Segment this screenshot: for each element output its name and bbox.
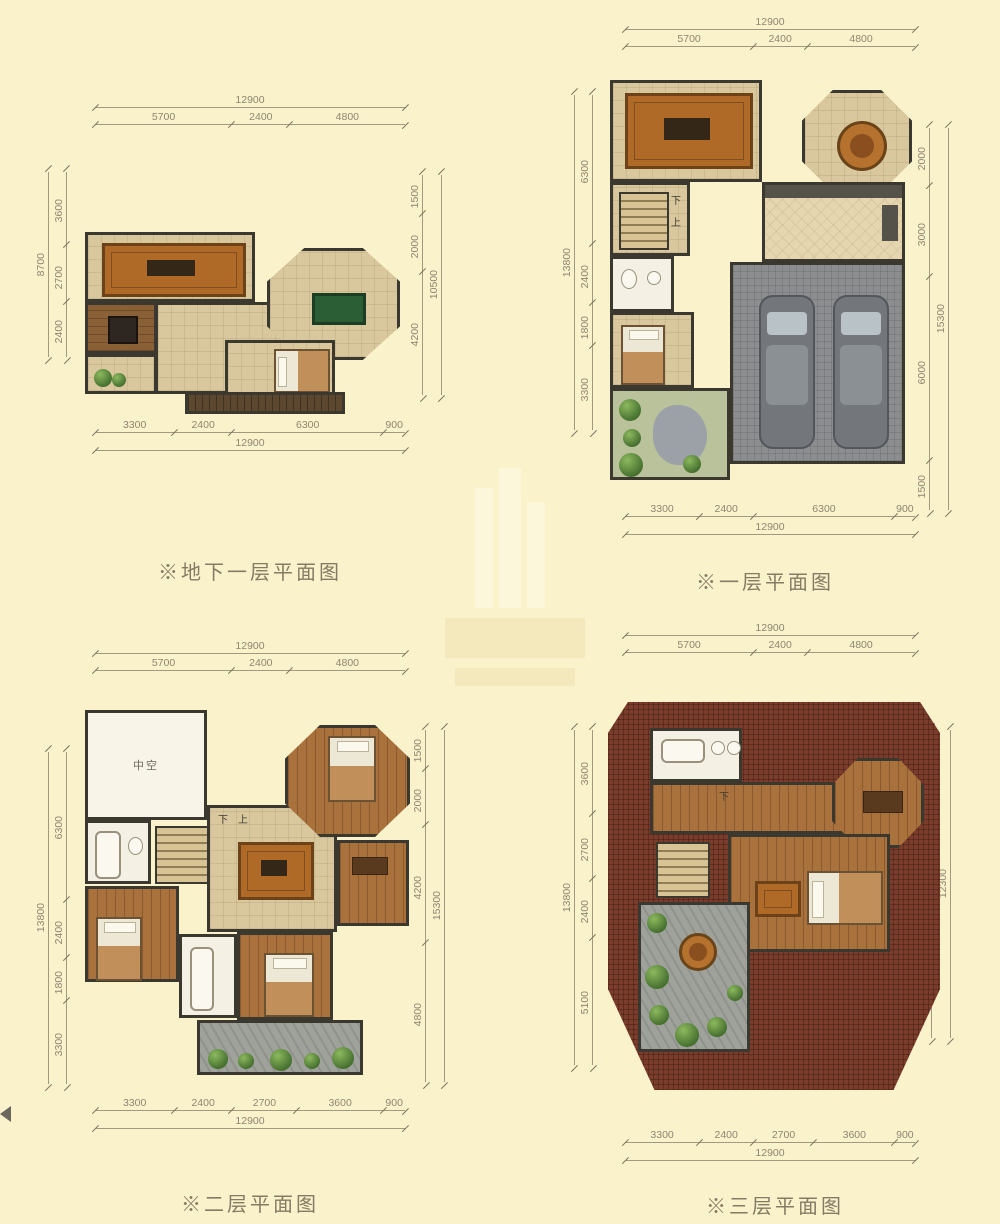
dim-segments: 6300240018003300	[575, 95, 593, 430]
bed	[96, 917, 142, 981]
dim-segment: 3300	[625, 1126, 699, 1143]
study-right	[337, 840, 409, 926]
dim-label: 4800	[336, 112, 359, 125]
dim-overall: 12900	[625, 618, 915, 636]
plan3-floorplan: 中空 下 上	[85, 710, 415, 1085]
dim-label: 2700	[253, 1098, 276, 1111]
dim-segment: 3000	[912, 189, 930, 281]
dim-segment: 2400	[49, 306, 67, 357]
dim-segment: 2000	[405, 218, 423, 275]
plant	[619, 453, 643, 477]
dim-label: 12900	[755, 17, 784, 30]
dim-label: 15300	[432, 891, 445, 920]
dim-label: 13800	[36, 903, 49, 932]
dim-label: 15300	[936, 304, 949, 333]
dim-overall: 12900	[625, 1143, 915, 1161]
dim-segment: 3600	[814, 1126, 895, 1143]
bed	[274, 349, 330, 393]
dim-segment: 2400	[575, 248, 593, 306]
dining-room	[802, 90, 912, 192]
dim-segment: 4800	[807, 636, 915, 653]
dim-overall: 12900	[625, 517, 915, 535]
plant	[623, 429, 641, 447]
dim-label: 2400	[768, 640, 791, 653]
dim-label: 13800	[562, 248, 575, 277]
dim-label: 12900	[235, 95, 264, 108]
dim-label: 13800	[562, 883, 575, 912]
plan2-dims-bottom: 330024006300900 12900	[625, 500, 915, 535]
dim-label: 6300	[296, 420, 319, 433]
dim-label: 5700	[677, 34, 700, 47]
dim-label: 6300	[580, 160, 593, 183]
dim-segments: 570024004800	[625, 30, 915, 47]
dim-label: 12900	[755, 1148, 784, 1161]
desk	[352, 857, 388, 875]
dim-segment: 6300	[575, 95, 593, 248]
living-room	[85, 232, 255, 302]
dim-segments: 6300240018003300	[49, 752, 67, 1084]
rug	[238, 842, 314, 900]
dim-label: 5700	[152, 658, 175, 671]
dim-segments: 570024004800	[95, 108, 405, 125]
dim-segment: 3300	[95, 416, 174, 433]
dim-segment: 4800	[290, 108, 405, 125]
dim-label: 4200	[410, 323, 423, 346]
dim-segment: 2400	[753, 636, 807, 653]
dim-segment: 900	[895, 1126, 915, 1143]
dim-segment: 1500	[405, 175, 423, 218]
stair-label-up: 上	[238, 816, 248, 826]
watermark-logo	[425, 468, 605, 713]
dim-overall: 12900	[95, 433, 405, 451]
dim-label: 4800	[336, 658, 359, 671]
hallway: 下	[650, 782, 862, 834]
dim-overall: 12900	[95, 1111, 405, 1129]
plant	[304, 1053, 320, 1069]
dim-segment: 1800	[49, 961, 67, 1004]
dim-label: 2400	[249, 112, 272, 125]
dim-segment: 2400	[575, 883, 593, 941]
dim-overall: 8700	[30, 172, 49, 357]
dim-label: 3300	[123, 420, 146, 433]
master-bedroom	[728, 834, 890, 952]
dim-label: 2400	[768, 34, 791, 47]
plan4-dims-top: 12900 570024004800	[625, 618, 915, 653]
plant	[645, 965, 669, 989]
toilet	[128, 837, 143, 855]
roof-terrace	[638, 902, 750, 1052]
dim-segments: 360027002400	[49, 172, 67, 357]
dim-segment: 2400	[699, 1126, 753, 1143]
dim-label: 12900	[755, 522, 784, 535]
dim-segment: 2700	[49, 249, 67, 306]
dim-label: 5700	[677, 640, 700, 653]
bathtub	[95, 831, 121, 879]
bedroom-left	[85, 886, 179, 982]
dim-segment: 2700	[232, 1094, 297, 1111]
dim-segment: 2000	[912, 128, 930, 189]
dim-overall: 15300	[426, 730, 445, 1082]
dim-label: 6300	[54, 816, 67, 839]
dim-label: 1500	[410, 185, 423, 208]
bed	[328, 736, 376, 802]
dim-label: 3300	[54, 1033, 67, 1056]
plant	[707, 1017, 727, 1037]
dim-segments: 3300240027003600900	[625, 1126, 915, 1143]
plan2-dims-left: 13800 6300240018003300	[556, 95, 593, 430]
sink	[727, 741, 741, 755]
plant	[94, 369, 112, 387]
dim-label: 10500	[429, 270, 442, 299]
storage-room	[85, 354, 157, 394]
dim-label: 5100	[580, 991, 593, 1014]
dim-segment: 900	[383, 416, 405, 433]
kitchen-counter	[765, 185, 902, 198]
plan1-dims-top: 12900 570024004800	[95, 90, 405, 125]
void-label: 中空	[133, 757, 159, 773]
dim-label: 4800	[849, 640, 872, 653]
bathroom	[85, 820, 151, 884]
staircase	[155, 826, 209, 884]
plan3-dims-left: 13800 6300240018003300	[30, 752, 67, 1084]
dim-label: 12900	[235, 438, 264, 451]
dim-overall: 13800	[556, 95, 575, 430]
dim-label: 3600	[54, 199, 67, 222]
dim-label: 900	[385, 1098, 403, 1111]
dim-overall: 12900	[95, 636, 405, 654]
dim-segment: 5100	[575, 941, 593, 1065]
dim-segment: 3300	[95, 1094, 174, 1111]
dim-label: 3300	[650, 504, 673, 517]
dim-segment: 6300	[49, 752, 67, 904]
dim-segments: 3300240027003600900	[95, 1094, 405, 1111]
dim-label: 6000	[917, 361, 930, 384]
plant	[270, 1049, 292, 1071]
dim-label: 12900	[235, 1116, 264, 1129]
plan4-dims-left: 13800 3600270024005100	[556, 730, 593, 1065]
dim-overall: 13800	[30, 752, 49, 1084]
guest-bedroom	[610, 312, 694, 388]
plan1-caption: ※地下一层平面图	[85, 556, 415, 585]
dim-segments: 330024006300900	[625, 500, 915, 517]
page-edge-mark	[0, 1106, 11, 1122]
dim-overall: 12900	[625, 12, 915, 30]
dim-label: 900	[896, 1130, 914, 1143]
dim-label: 2400	[580, 900, 593, 923]
dim-segment: 900	[383, 1094, 405, 1111]
dim-segment: 1800	[575, 306, 593, 350]
dim-label: 2700	[580, 838, 593, 861]
bedroom-bay	[285, 725, 410, 837]
dim-segment: 5700	[95, 108, 232, 125]
terrace-table	[679, 933, 717, 971]
billiard-table	[312, 293, 366, 325]
dim-segment: 5700	[625, 30, 753, 47]
dim-segment: 2400	[232, 108, 290, 125]
dim-label: 4800	[849, 34, 872, 47]
dim-label: 2700	[772, 1130, 795, 1143]
dim-segment: 6000	[912, 281, 930, 464]
dim-label: 2400	[249, 658, 272, 671]
dim-segments: 570024004800	[95, 654, 405, 671]
dim-label: 900	[385, 420, 403, 433]
plan4-floorplan: 下	[608, 702, 940, 1090]
dining-nook	[85, 302, 157, 354]
dim-segment: 4200	[405, 275, 423, 395]
plant	[647, 913, 667, 933]
stair-hall: 下 上	[610, 182, 690, 256]
plan2-dims-top: 12900 570024004800	[625, 12, 915, 47]
car	[759, 295, 815, 449]
dim-label: 8700	[36, 253, 49, 276]
dim-segment: 2400	[753, 30, 807, 47]
plant	[332, 1047, 354, 1069]
dim-segment: 2400	[699, 500, 753, 517]
dim-segment: 4800	[290, 654, 405, 671]
dim-label: 5700	[152, 112, 175, 125]
dim-label: 2400	[580, 265, 593, 288]
dim-segment: 5700	[95, 654, 232, 671]
rug	[625, 93, 753, 169]
dim-label: 2400	[714, 1130, 737, 1143]
dim-label: 1800	[580, 316, 593, 339]
dining-table	[837, 121, 887, 171]
dim-label: 6300	[812, 504, 835, 517]
bathroom-2	[179, 934, 237, 1018]
dim-label: 2700	[54, 266, 67, 289]
plant	[675, 1023, 699, 1047]
plan3-caption: ※二层平面图	[85, 1188, 415, 1217]
bed	[621, 325, 665, 385]
plant	[619, 399, 641, 421]
stair-label-down: 下	[719, 793, 729, 803]
dim-segment: 3300	[49, 1005, 67, 1084]
dim-segment: 3600	[297, 1094, 384, 1111]
dim-segments: 2000300060001500	[912, 128, 930, 510]
bedroom	[225, 340, 335, 396]
sink	[647, 271, 661, 285]
dim-segment: 3600	[575, 730, 593, 817]
kitchen-island	[882, 205, 898, 241]
terrace	[197, 1020, 363, 1075]
dim-segment: 3600	[49, 172, 67, 249]
dim-segment: 2400	[174, 1094, 232, 1111]
void-room: 中空	[85, 710, 207, 820]
dim-segment: 4800	[807, 30, 915, 47]
dim-label: 900	[896, 504, 914, 517]
dim-segment: 5700	[625, 636, 753, 653]
bathtub	[661, 739, 705, 763]
dim-label: 3300	[123, 1098, 146, 1111]
dim-segment: 3300	[575, 350, 593, 430]
dim-label: 2400	[54, 320, 67, 343]
dim-label: 3300	[650, 1130, 673, 1143]
dim-label: 3000	[917, 223, 930, 246]
dim-segment: 6300	[753, 500, 895, 517]
living-room	[610, 80, 762, 182]
dim-segment: 2400	[174, 416, 232, 433]
dim-segments: 570024004800	[625, 636, 915, 653]
plan2-caption: ※一层平面图	[610, 566, 920, 595]
dim-segment: 2400	[49, 904, 67, 962]
dim-segment: 3300	[625, 500, 699, 517]
dim-overall: 15300	[930, 128, 949, 510]
dim-segment: 6300	[232, 416, 383, 433]
plan3-dims-bottom: 3300240027003600900 12900	[95, 1094, 405, 1129]
garage	[730, 262, 905, 464]
sink	[711, 741, 725, 755]
dim-segment: 2700	[575, 817, 593, 883]
dim-label: 1800	[54, 971, 67, 994]
plant	[208, 1049, 228, 1069]
dim-label: 3600	[328, 1098, 351, 1111]
plant	[112, 373, 126, 387]
bedroom-center	[237, 932, 333, 1020]
bed	[264, 953, 314, 1017]
dim-segments: 330024006300900	[95, 416, 405, 433]
dim-label: 3600	[843, 1130, 866, 1143]
garden	[610, 388, 730, 480]
plan1-dims-left: 8700 360027002400	[30, 172, 67, 357]
dim-segments: 150020004200	[405, 175, 423, 395]
bed	[807, 871, 883, 925]
bathroom	[610, 256, 674, 312]
staircase	[619, 192, 669, 250]
bathtub	[190, 947, 214, 1011]
dim-label: 2400	[191, 420, 214, 433]
bathroom	[650, 728, 742, 782]
dim-segments: 3600270024005100	[575, 730, 593, 1065]
staircase	[656, 842, 710, 898]
stair-label-down: 下	[218, 816, 228, 826]
table	[108, 316, 138, 344]
dim-segment: 2400	[232, 654, 290, 671]
plant	[727, 985, 743, 1001]
dim-overall: 12900	[95, 90, 405, 108]
plant	[238, 1053, 254, 1069]
dim-overall: 13800	[556, 730, 575, 1065]
dim-label: 12900	[755, 623, 784, 636]
plan1-dims-right: 150020004200 10500	[405, 175, 442, 395]
toilet	[621, 269, 637, 289]
plan4-dims-bottom: 3300240027003600900 12900	[625, 1126, 915, 1161]
rug	[102, 243, 246, 297]
dim-label: 2400	[191, 1098, 214, 1111]
plan2-dims-right: 2000300060001500 15300	[912, 128, 949, 510]
plan4-caption: ※三层平面图	[610, 1190, 940, 1219]
dim-label: 2400	[54, 921, 67, 944]
desk	[863, 791, 903, 813]
dim-label: 3600	[580, 762, 593, 785]
plan1-floorplan	[85, 232, 400, 414]
dim-segment: 900	[895, 500, 915, 517]
plan2-floorplan: 下 上	[610, 80, 905, 485]
dim-label: 3300	[580, 378, 593, 401]
rug	[755, 881, 801, 917]
dim-overall: 10500	[423, 175, 442, 395]
plan1-dims-bottom: 330024006300900 12900	[95, 416, 405, 451]
dim-label: 12900	[235, 641, 264, 654]
dim-segment: 2700	[753, 1126, 814, 1143]
stair-label-up: 上	[671, 219, 681, 229]
plant	[683, 455, 701, 473]
car	[833, 295, 889, 449]
dim-label: 2400	[714, 504, 737, 517]
dim-label: 2000	[410, 235, 423, 258]
kitchen	[762, 182, 905, 262]
dim-label: 2000	[917, 147, 930, 170]
stone-path	[653, 405, 707, 465]
dim-label: 1500	[917, 475, 930, 498]
plan3-dims-top: 12900 570024004800	[95, 636, 405, 671]
plant	[649, 1005, 669, 1025]
deck-patio	[185, 392, 345, 414]
stair-label-down: 下	[671, 197, 681, 207]
